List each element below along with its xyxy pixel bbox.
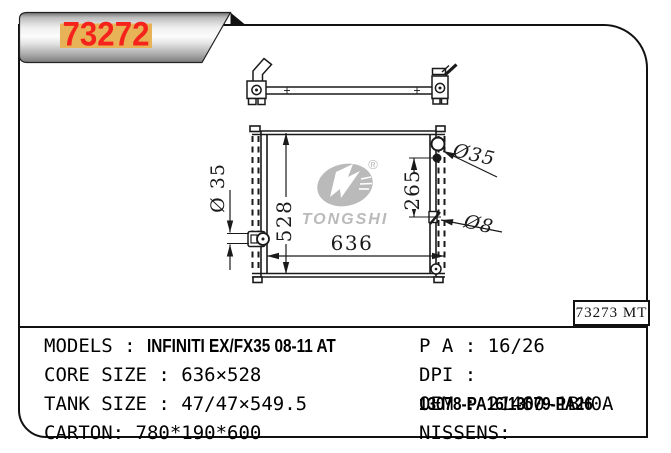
filler-neck [432, 138, 445, 151]
dimension-528-text: 528 [272, 200, 296, 243]
dimension-636-text: 636 [331, 231, 374, 255]
spec-label: DPI : [419, 364, 476, 386]
spec-row-dpi: DPI :13078-PA16/13079-PA26 [419, 361, 664, 390]
spec-value: 636×528 [181, 364, 261, 386]
logo-brand-text: TONGSHI [302, 211, 389, 228]
spec-row-models: MODELS : INFINITI EX/FX35 08-11 AT [44, 332, 414, 361]
specs-left-column: MODELS : INFINITI EX/FX35 08-11 AT CORE … [44, 332, 414, 448]
spec-label: NISSENS: [419, 422, 511, 444]
spec-row-nissens: NISSENS: [419, 419, 664, 448]
bottom-right-foot [434, 277, 443, 283]
reference-number-box: 73273 MT [573, 300, 650, 326]
center-marks [284, 88, 420, 94]
dimension-filler-text: Ø35 [450, 139, 498, 170]
banner-fold-corner [231, 13, 246, 25]
spec-label: CARTON: [44, 422, 136, 444]
spec-value: 47/47×549.5 [181, 393, 307, 415]
tongshi-logo-watermark: ® TONGSHI [302, 157, 389, 228]
spec-value: 13078-PA16/13079-PA26 [419, 390, 593, 419]
reference-number-text: 73273 MT [576, 305, 648, 322]
spec-label: MODELS : [44, 335, 147, 357]
spec-value: INFINITI EX/FX35 08-11 AT [147, 332, 336, 361]
catalog-page: 73272 ® TONGSHI [0, 0, 671, 453]
spec-value: 780*190*600 [136, 422, 262, 444]
part-number-text: 73272 [63, 14, 150, 53]
part-number-banner: 73272 [20, 13, 246, 63]
specs-right-column: P A : 16/26 DPI :13078-PA16/13079-PA26 O… [419, 332, 664, 448]
dimension-left-pipe-text: Ø 35 [207, 163, 229, 213]
spec-value: 16/26 [488, 335, 545, 357]
registered-trademark-icon: ® [368, 157, 378, 172]
spec-row-pa: P A : 16/26 [419, 332, 664, 361]
dimension-drain-text: Ø8 [461, 210, 496, 238]
spec-label: CORE SIZE : [44, 364, 181, 386]
spec-label: TANK SIZE : [44, 393, 181, 415]
left-inlet-pipe [253, 59, 272, 83]
spec-row-core-size: CORE SIZE : 636×528 [44, 361, 414, 390]
top-right-tab [436, 126, 445, 132]
bottom-left-foot [253, 277, 262, 283]
spec-row-carton: CARTON: 780*190*600 [44, 419, 414, 448]
radiator-top-view [247, 59, 457, 105]
top-left-tab [250, 126, 260, 132]
spec-row-tank-size: TANK SIZE : 47/47×549.5 [44, 390, 414, 419]
spec-label: P A : [419, 335, 488, 357]
right-bracket-tab [445, 65, 457, 76]
dimension-265-text: 265 [400, 169, 424, 210]
